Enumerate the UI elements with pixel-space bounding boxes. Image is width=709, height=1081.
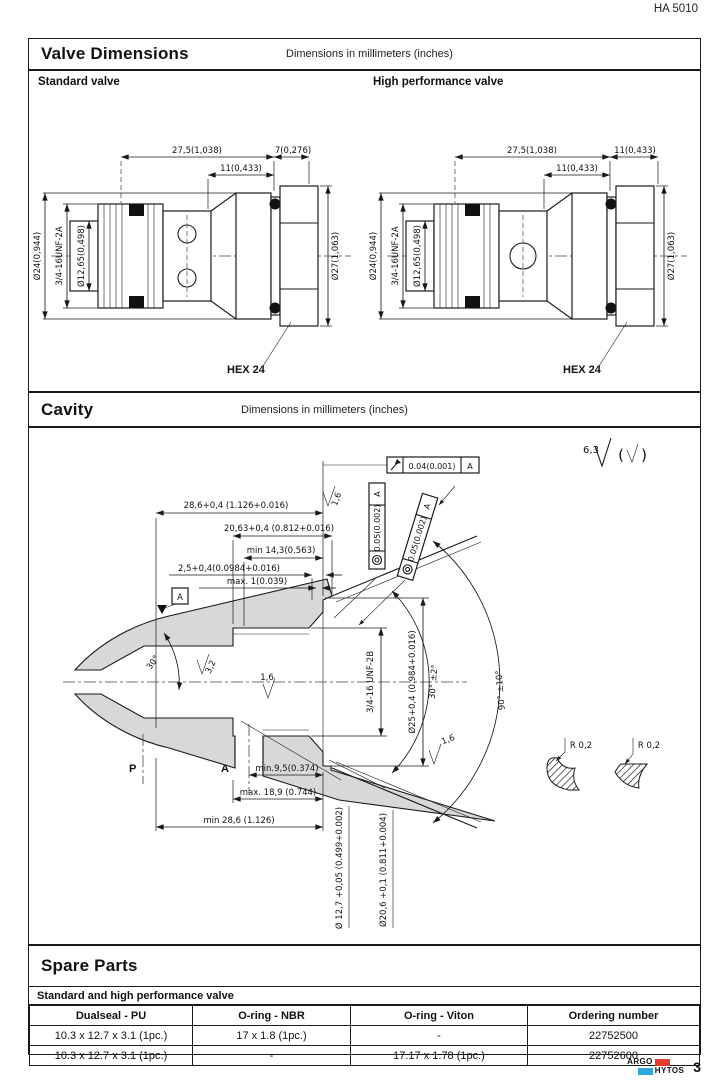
dim-label: 2,5+0,4(0.0984+0.016) — [178, 564, 280, 574]
logo-blue-square — [638, 1068, 653, 1075]
surface-finish-label: 1,6 — [440, 733, 456, 747]
cell-ordering-number: 22752500 — [528, 1026, 700, 1046]
cavity-drawing-area: 28,6+0,4 (1.126+0.016) 20,63+0,4 (0.812+… — [29, 428, 700, 944]
dim-label: Ø12,65(0,498) — [412, 225, 423, 287]
col-header-oring-nbr: O-ring - NBR — [193, 1006, 351, 1026]
dim-label: Ø 12,7 +0,05 (0.499+0.002) — [334, 807, 345, 929]
dim-label: 27,5(1,038) — [172, 146, 222, 156]
valve-dimensions-title: Valve Dimensions — [41, 44, 189, 64]
dim-label: min 14,3(0.563) — [247, 546, 316, 556]
dim-label: min 28,6 (1.126) — [203, 816, 274, 826]
col-header-oring-viton: O-ring - Viton — [351, 1006, 528, 1026]
surface-finish-label: 3,2 — [204, 659, 219, 675]
spare-parts-subtitle: Standard and high performance valve — [29, 987, 700, 1005]
dim-label: 27,5(1,038) — [507, 146, 557, 156]
dim-label: 11(0,433) — [220, 164, 262, 174]
dim-label: min.9,5(0.374) — [255, 764, 318, 774]
dim-label: 3/4-16 UNF-2B — [366, 651, 376, 713]
cavity-title: Cavity — [41, 400, 93, 420]
spare-parts-title: Spare Parts — [41, 956, 138, 976]
dim-label: 3/4-16UNF-2A — [391, 226, 401, 286]
page-number: 3 — [693, 1059, 701, 1075]
dim-label: 20,63+0,4 (0.812+0.016) — [224, 524, 334, 534]
port-p-label: P — [129, 763, 136, 775]
dim-label: Ø12,65(0,498) — [76, 225, 87, 287]
dim-label: max. 18,9 (0.744) — [240, 788, 317, 798]
col-header-ordering-number: Ordering number — [528, 1006, 700, 1026]
datum-ref: A — [373, 491, 382, 497]
table-header-row: Dualseal - PU O-ring - NBR O-ring - Vito… — [30, 1006, 700, 1026]
page-frame: Valve Dimensions Dimensions in millimete… — [28, 38, 701, 1055]
hex-label: HEX 24 — [227, 364, 266, 376]
angle-label: 30° ±2° — [428, 664, 441, 699]
dim-label: 11(0,433) — [556, 164, 598, 174]
dim-label: Ø24(0,944) — [368, 232, 379, 280]
cavity-drawing: 28,6+0,4 (1.126+0.016) 20,63+0,4 (0.812+… — [29, 428, 697, 944]
argo-hytos-logo: ARGO HYTOS — [627, 1058, 684, 1075]
dim-label: Ø27(1,063) — [330, 232, 341, 280]
dim-label: max. 1(0.039) — [227, 577, 287, 587]
dim-label: Ø20,6 +0,1 (0.811+0.004) — [378, 813, 389, 927]
logo-argo-text: ARGO — [627, 1058, 653, 1066]
radius-label: R 0,2 — [638, 741, 660, 751]
spare-parts-table: Dualseal - PU O-ring - NBR O-ring - Vito… — [29, 1005, 700, 1066]
high-performance-valve-label: High performance valve — [373, 76, 503, 88]
dim-label: Ø27(1,063) — [666, 232, 677, 280]
cavity-units-note: Dimensions in millimeters (inches) — [241, 404, 408, 416]
angle-label: 90° ±10° — [494, 670, 507, 711]
valve-drawings-area: Standard valve High performance valve — [29, 71, 700, 393]
concentricity-tolerance: 0.05(0.002) — [373, 505, 382, 552]
dim-label: 7(0,276) — [275, 146, 311, 156]
radius-label: R 0,2 — [570, 741, 592, 751]
paren: ) — [641, 446, 647, 464]
datum-a-label: A — [177, 593, 183, 603]
paren: ( — [618, 446, 624, 464]
cell-oring-viton: - — [351, 1026, 528, 1046]
port-a-label: A — [221, 763, 229, 775]
footer: ARGO HYTOS 3 — [28, 1058, 701, 1075]
dim-label: 11(0,433) — [614, 146, 656, 156]
col-header-dualseal: Dualseal - PU — [30, 1006, 193, 1026]
standard-valve-label: Standard valve — [38, 76, 120, 88]
cell-dualseal: 10.3 x 12.7 x 3.1 (1pc.) — [30, 1026, 193, 1046]
high-performance-valve-drawing: 27,5(1,038) 11(0,433) 11(0,433) Ø24(0,94… — [367, 127, 697, 387]
logo-hytos-text: HYTOS — [655, 1067, 684, 1075]
surface-finish-label: 1,6 — [260, 673, 274, 683]
hex-label: HEX 24 — [563, 364, 602, 376]
angle-label: 30° — [145, 654, 162, 672]
dim-label: Ø24(0,944) — [32, 232, 43, 280]
dim-label: 28,6+0,4 (1.126+0.016) — [184, 501, 289, 511]
runout-tolerance: 0.04(0.001) — [409, 462, 456, 471]
section-spare-parts-header: Spare Parts — [29, 944, 700, 987]
datum-ref: A — [467, 462, 473, 471]
dim-label: Ø25+0,4 (0.984+0.016) — [407, 630, 418, 733]
doc-number: HA 5010 — [654, 3, 698, 15]
datasheet-page: HA 5010 Valve Dimensions Dimensions in m… — [0, 0, 709, 1081]
section-cavity-header: Cavity Dimensions in millimeters (inches… — [29, 391, 700, 428]
section-valve-dimensions-header: Valve Dimensions Dimensions in millimete… — [29, 39, 700, 71]
cell-oring-nbr: 17 x 1.8 (1pc.) — [193, 1026, 351, 1046]
standard-valve-drawing: 27,5(1,038) 7(0,276) 11(0,433) Ø24(0,944… — [31, 127, 361, 387]
table-row: 10.3 x 12.7 x 3.1 (1pc.) 17 x 1.8 (1pc.)… — [30, 1026, 700, 1046]
logo-red-square — [655, 1059, 670, 1066]
valve-units-note: Dimensions in millimeters (inches) — [286, 48, 453, 60]
dim-label: 3/4-16UNF-2A — [55, 226, 65, 286]
